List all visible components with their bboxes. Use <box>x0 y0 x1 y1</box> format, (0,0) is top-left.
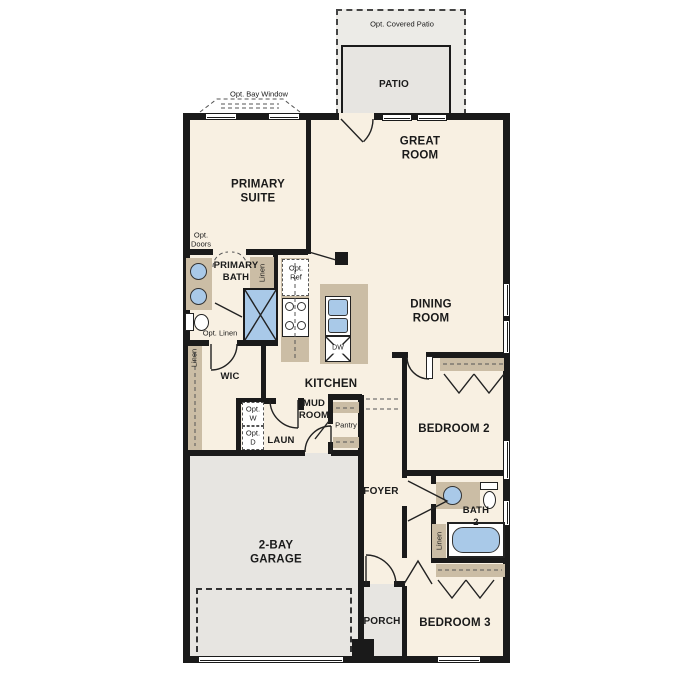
burner <box>285 321 294 330</box>
patio-label: PATIO <box>379 79 409 92</box>
burner <box>285 302 294 311</box>
room-label-bedroom-2: BEDROOM 2 <box>418 422 489 436</box>
pantry-label: Pantry <box>335 420 357 429</box>
garage-door-dashed-outline <box>196 588 352 652</box>
wall <box>183 249 213 255</box>
wall <box>394 581 405 587</box>
opt-doors-label: Opt. Doors <box>191 231 211 250</box>
window <box>437 656 481 663</box>
shower <box>243 288 278 342</box>
floor-plan: Opt. Covered Patio PATIO <box>0 0 687 687</box>
wall <box>261 346 266 403</box>
window <box>503 440 510 480</box>
closet-shelf <box>436 564 505 577</box>
wall <box>236 398 241 454</box>
bathtub-basin <box>452 527 500 553</box>
linen-label: Linen <box>435 532 444 550</box>
wall <box>183 450 305 456</box>
window <box>268 113 300 120</box>
burner <box>297 302 306 311</box>
window <box>417 114 447 121</box>
toilet <box>480 482 498 490</box>
dishwasher-label: DW <box>331 345 345 354</box>
window <box>503 283 510 317</box>
sink <box>328 318 348 333</box>
room-label-garage: 2-BAY GARAGE <box>250 539 302 568</box>
room-label-dining-room: DINING ROOM <box>410 298 451 327</box>
opt-bay-window-label: Opt. Bay Window <box>230 89 288 98</box>
sink <box>328 299 348 316</box>
linen-label: Linen <box>190 349 199 367</box>
garage-door <box>198 656 344 663</box>
toilet <box>185 313 194 331</box>
window <box>382 114 412 121</box>
burner <box>297 321 306 330</box>
opt-washer-label: Opt. W <box>246 405 260 424</box>
room-label-primary-suite: PRIMARY SUITE <box>231 178 285 207</box>
wall <box>402 586 407 657</box>
room-label-kitchen: KITCHEN <box>305 377 358 391</box>
patio-door-opening <box>339 113 374 120</box>
pantry-shelf <box>333 437 359 448</box>
wall <box>503 113 510 663</box>
room-label-bedroom-3: BEDROOM 3 <box>419 616 490 630</box>
wall <box>431 558 505 563</box>
window <box>205 113 237 120</box>
room-label-mud-room: MUD ROOM <box>299 398 329 422</box>
room-label-laun: LAUN <box>267 435 294 447</box>
sink <box>190 288 207 305</box>
sink <box>190 263 207 280</box>
door-leaf <box>426 356 433 379</box>
room-label-foyer: FOYER <box>363 486 398 499</box>
wall <box>306 113 311 254</box>
sink <box>443 486 462 505</box>
linen-label: Linen <box>258 264 267 282</box>
opt-linen-label: Opt. Linen <box>203 328 238 337</box>
room-label-primary-bath: PRIMARY BATH <box>214 260 259 284</box>
wall <box>402 506 407 558</box>
opt-bay-window-outline <box>200 99 300 112</box>
room-label-wic: WIC <box>220 371 239 383</box>
wall <box>402 470 505 476</box>
room-label-porch: PORCH <box>363 616 400 629</box>
opt-dryer-label: Opt. D <box>246 429 260 448</box>
wall-post <box>335 252 348 265</box>
wall <box>358 581 370 587</box>
wall <box>328 394 362 400</box>
pantry-shelf <box>333 402 359 413</box>
room-label-great-room: GREAT ROOM <box>400 135 440 164</box>
wall <box>402 352 407 478</box>
opt-ref-label: Opt. Ref <box>289 264 303 283</box>
room-label-bath-2: BATH 2 <box>463 505 489 529</box>
opt-covered-patio-label: Opt. Covered Patio <box>370 19 434 28</box>
closet-shelf <box>440 358 504 371</box>
wall-post <box>352 639 374 663</box>
window <box>503 320 510 354</box>
